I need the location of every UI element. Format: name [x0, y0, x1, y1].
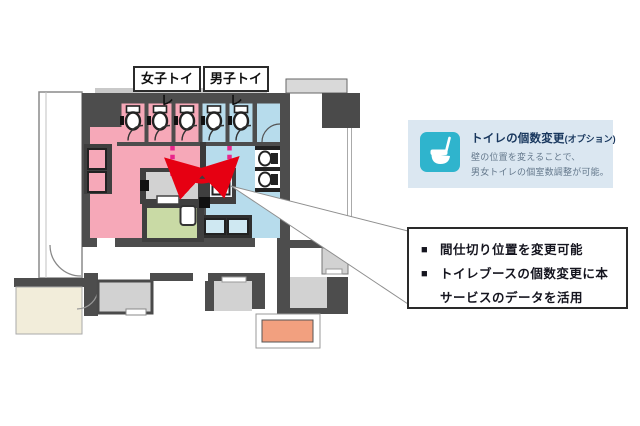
left-shaft — [39, 92, 82, 278]
urinal — [259, 173, 278, 187]
escalator — [262, 320, 313, 342]
toilet-stall-women — [120, 104, 145, 143]
callout-body-line1: 壁の位置を変えることで、 — [471, 150, 616, 164]
toilet-option-icon — [419, 131, 461, 178]
urinal — [259, 152, 278, 166]
utility-room — [142, 204, 204, 242]
note-bullet: ■ — [421, 262, 440, 286]
womens-entrance-gap — [97, 238, 115, 247]
mens-entrance-gap — [255, 238, 277, 247]
mens-sink-counter — [201, 215, 252, 238]
note-bullet — [421, 286, 440, 310]
urinal-alcove — [255, 146, 280, 192]
note-item: ■ 間仕切り位置を変更可能 — [421, 238, 618, 262]
callout-title: トイレの個数変更 — [471, 133, 565, 145]
floor-plan — [0, 0, 640, 426]
shaft-column — [322, 93, 360, 128]
womens-sink — [88, 172, 106, 192]
elevator-cab — [214, 281, 252, 311]
toilet-stall-women — [174, 104, 199, 143]
utility-sink — [181, 206, 196, 225]
elevator-cab — [98, 281, 152, 313]
callout-body-line2: 男女トイレの個室数調整が可能。 — [471, 165, 616, 179]
label-mens-toilet: 男子トイレ — [203, 66, 269, 92]
womens-sink — [88, 149, 106, 169]
notes-box: ■ 間仕切り位置を変更可能 ■ トイレブースの個数変更に本 サービスのデータを活… — [407, 227, 628, 309]
mens-sink — [205, 219, 225, 234]
slide-canvas: 女子トイレ 男子トイレ トイレの個数変更(オプション) 壁の位置を変えることで、… — [0, 0, 640, 426]
lobby-room — [16, 287, 82, 334]
note-item: サービスのデータを活用 — [421, 286, 618, 310]
label-womens-toilet: 女子トイレ — [133, 66, 201, 92]
note-bullet: ■ — [421, 238, 440, 262]
note-item: ■ トイレブースの個数変更に本 — [421, 262, 618, 286]
option-callout-box: トイレの個数変更(オプション) 壁の位置を変えることで、 男女トイレの個室数調整… — [408, 120, 613, 188]
mens-sink — [228, 219, 248, 234]
callout-title-suffix: (オプション) — [565, 134, 616, 144]
toilet-stall-men — [201, 104, 226, 143]
gender-dividing-wall — [200, 142, 206, 172]
